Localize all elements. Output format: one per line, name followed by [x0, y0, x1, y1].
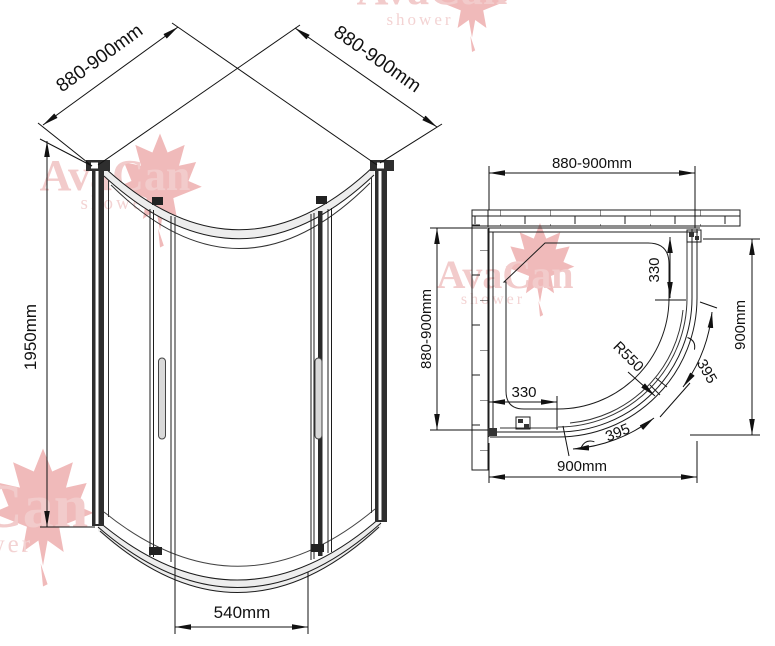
dim-plan-side-panel-bottom: 330: [489, 384, 557, 430]
dim-label: 900mm: [732, 300, 749, 350]
dim-plan-door-arc-bottom: 395: [563, 418, 654, 456]
right-door-bottom-guide: [311, 544, 324, 552]
right-door-handle: [315, 358, 322, 439]
dim-label: 395: [603, 420, 633, 445]
door-split-tick: [656, 378, 667, 387]
dim-front-width-left: 880-900mm: [38, 20, 377, 166]
right-panel-bracket-block: [689, 232, 694, 237]
right-door-top-roller: [316, 196, 327, 204]
arc-symbol: [580, 439, 594, 447]
front-view: [86, 160, 394, 593]
dim-label-group: 395: [680, 333, 720, 386]
top-wall-hatch: [472, 210, 740, 226]
left-door-handle: [159, 358, 166, 439]
dim-front-width-right: 880-900mm: [98, 22, 442, 165]
dim-front-door-opening: 540mm: [175, 560, 308, 634]
dim-label: 880-900mm: [552, 155, 632, 172]
dim-plan-width-bottom: 900mm: [489, 441, 697, 483]
right-wall-bracket-detail: [377, 163, 384, 169]
dim-label: 330: [511, 384, 536, 401]
watermark-subtitle-text: shower: [386, 10, 453, 29]
dim-label: 880-900mm: [418, 289, 435, 369]
dim-plan-side-panel-right: 330: [646, 237, 686, 300]
left-wall-hatch: [472, 210, 488, 470]
shower-enclosure-technical-drawing: AvaCan shower AvaCan shower AvaCan showe…: [0, 0, 775, 646]
bottom-rail-band: [98, 517, 381, 593]
watermark-top-right: AvaCan shower: [357, 0, 508, 52]
dim-plan-radius: R550: [609, 338, 655, 396]
left-door-bottom-guide: [149, 547, 162, 555]
left-wall-profile-highlight: [96, 166, 99, 524]
door-stopper-detail: [518, 419, 523, 423]
watermark-subtitle-text: shower: [0, 531, 33, 558]
right-wall-profile-highlight: [379, 166, 382, 520]
drawing-svg: AvaCan shower AvaCan shower AvaCan showe…: [0, 0, 775, 646]
right-panel-bracket-block2: [695, 236, 699, 240]
dim-label: 540mm: [214, 603, 271, 622]
dim-plan-depth-right: 900mm: [690, 239, 760, 435]
dim-label: 1950mm: [21, 304, 40, 370]
door-stopper-detail2: [524, 424, 529, 428]
dim-label: 880-900mm: [53, 20, 147, 97]
dim-label-group: 395: [578, 420, 632, 455]
dim-label: R550: [609, 338, 646, 375]
bottom-panel-bracket: [488, 428, 497, 436]
watermark-plan-view: AvaCan shower: [436, 223, 574, 317]
arc-symbol: [687, 336, 697, 350]
bottom-rail-top-edge: [98, 517, 381, 580]
dim-label: 395: [693, 356, 720, 386]
left-door-top-roller: [152, 197, 163, 205]
dim-label: 900mm: [557, 458, 607, 475]
dim-label: 330: [646, 257, 663, 282]
